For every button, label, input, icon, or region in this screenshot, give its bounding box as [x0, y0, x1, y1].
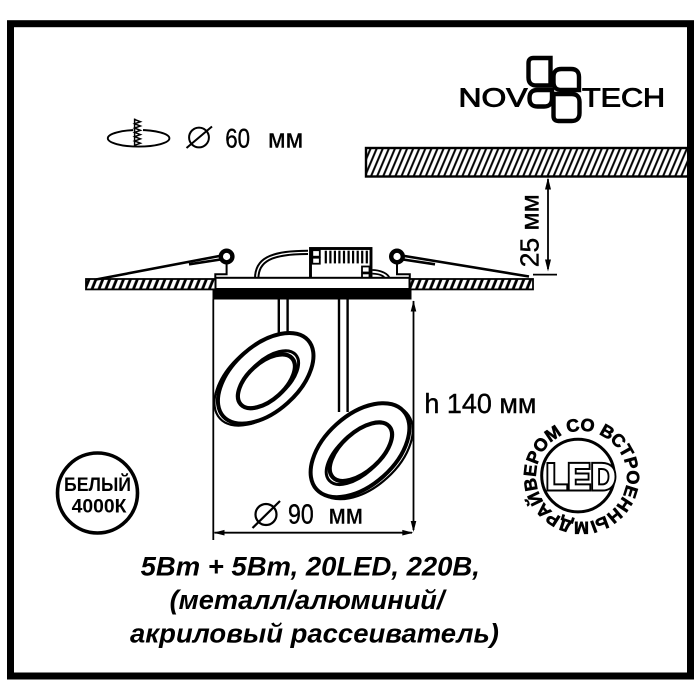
svg-text:акриловый рассеиватель): акриловый рассеиватель): [130, 619, 499, 649]
svg-text:(металл/алюминий/: (металл/алюминий/: [170, 585, 447, 615]
svg-text:25 мм: 25 мм: [515, 194, 545, 267]
svg-text:NOV: NOV: [459, 83, 529, 113]
svg-text:TECH: TECH: [582, 83, 665, 113]
svg-text:60: 60: [225, 124, 250, 154]
svg-text:мм: мм: [268, 124, 303, 154]
svg-text:LED: LED: [546, 457, 616, 498]
svg-text:90: 90: [288, 499, 314, 530]
svg-text:мм: мм: [329, 499, 363, 530]
svg-text:4000К: 4000К: [72, 496, 127, 518]
svg-text:h 140 мм: h 140 мм: [424, 388, 536, 419]
svg-text:БЕЛЫЙ: БЕЛЫЙ: [64, 472, 131, 496]
svg-text:5Вт + 5Вт, 20LED, 220В,: 5Вт + 5Вт, 20LED, 220В,: [141, 552, 480, 582]
